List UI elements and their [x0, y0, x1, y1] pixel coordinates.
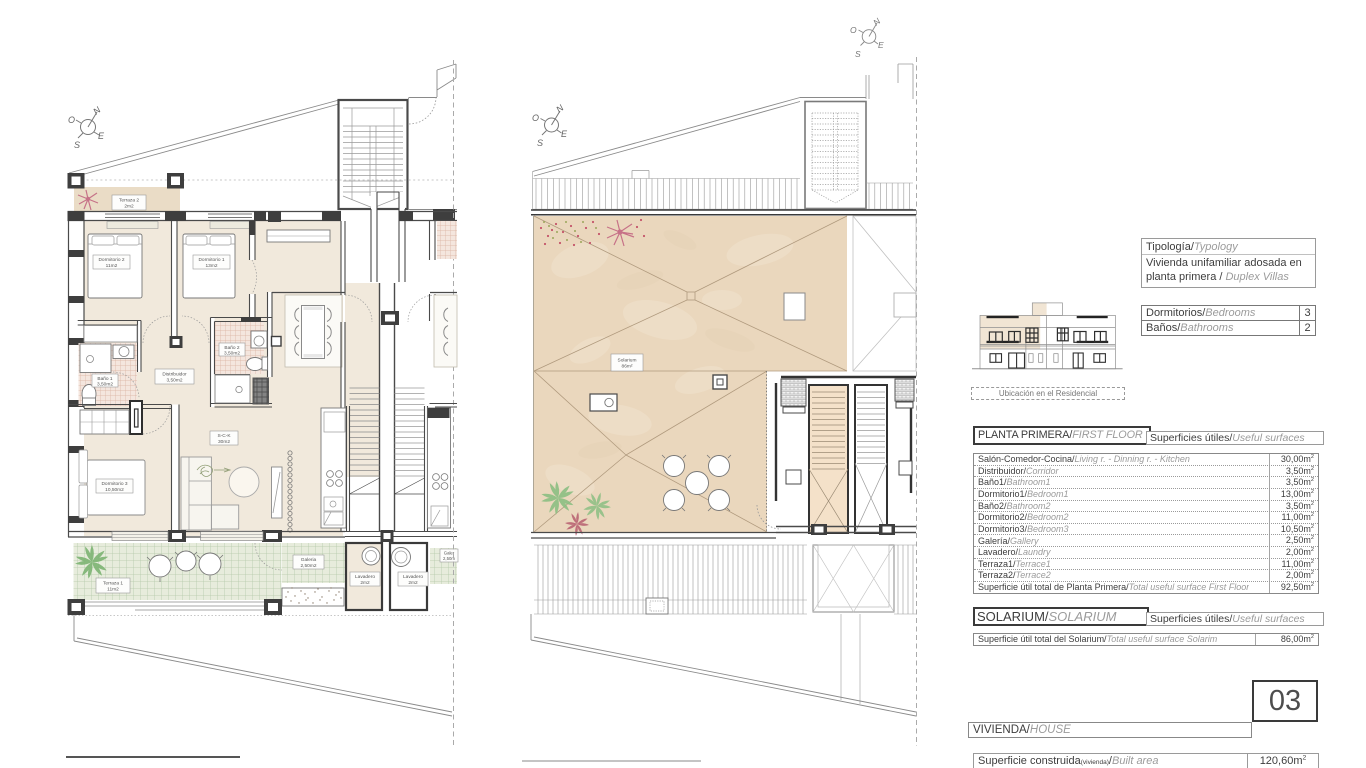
- svg-text:O: O: [68, 115, 75, 125]
- svg-text:2m2: 2m2: [124, 204, 134, 210]
- svg-text:3,50m2: 3,50m2: [224, 351, 240, 357]
- svg-text:N: N: [554, 102, 566, 114]
- svg-text:Terraza 2: Terraza 2: [119, 198, 139, 204]
- svg-text:3,50m2: 3,50m2: [97, 382, 113, 388]
- svg-text:2m2: 2m2: [360, 580, 370, 586]
- svg-text:86m²: 86m²: [622, 364, 633, 370]
- svg-text:E: E: [561, 129, 568, 139]
- svg-text:3,50m2: 3,50m2: [167, 378, 183, 384]
- svg-text:2m2: 2m2: [408, 580, 418, 586]
- svg-text:Lavadero: Lavadero: [355, 574, 375, 580]
- svg-text:S: S: [855, 49, 861, 59]
- svg-text:30m2: 30m2: [218, 439, 230, 445]
- svg-text:Baño 2: Baño 2: [224, 345, 240, 351]
- svg-text:E: E: [98, 131, 105, 141]
- svg-text:N: N: [871, 15, 883, 27]
- svg-text:Solarium: Solarium: [618, 358, 637, 364]
- svg-text:Dormitorio 2: Dormitorio 2: [98, 257, 124, 263]
- svg-text:11m2: 11m2: [106, 263, 118, 269]
- svg-text:O: O: [532, 113, 539, 123]
- svg-text:Dormitorio 3: Dormitorio 3: [101, 481, 127, 487]
- svg-text:Lavadero: Lavadero: [403, 574, 423, 580]
- svg-text:E: E: [878, 40, 884, 50]
- svg-text:13m2: 13m2: [206, 263, 218, 269]
- svg-text:2,50m2: 2,50m2: [301, 563, 317, 569]
- svg-text:S-C-K: S-C-K: [217, 433, 231, 439]
- svg-text:Distribuidor: Distribuidor: [162, 372, 187, 378]
- svg-text:S: S: [74, 140, 80, 150]
- svg-text:Dormitorio 1: Dormitorio 1: [198, 257, 224, 263]
- svg-text:N: N: [91, 104, 103, 116]
- svg-text:Terraza 1: Terraza 1: [103, 581, 123, 587]
- svg-text:S: S: [537, 138, 543, 148]
- svg-text:11m2: 11m2: [107, 587, 119, 593]
- svg-text:10,50m2: 10,50m2: [105, 487, 124, 493]
- svg-text:Galeria: Galeria: [301, 557, 317, 563]
- svg-text:Baño 1: Baño 1: [97, 376, 113, 382]
- svg-text:O: O: [850, 25, 857, 35]
